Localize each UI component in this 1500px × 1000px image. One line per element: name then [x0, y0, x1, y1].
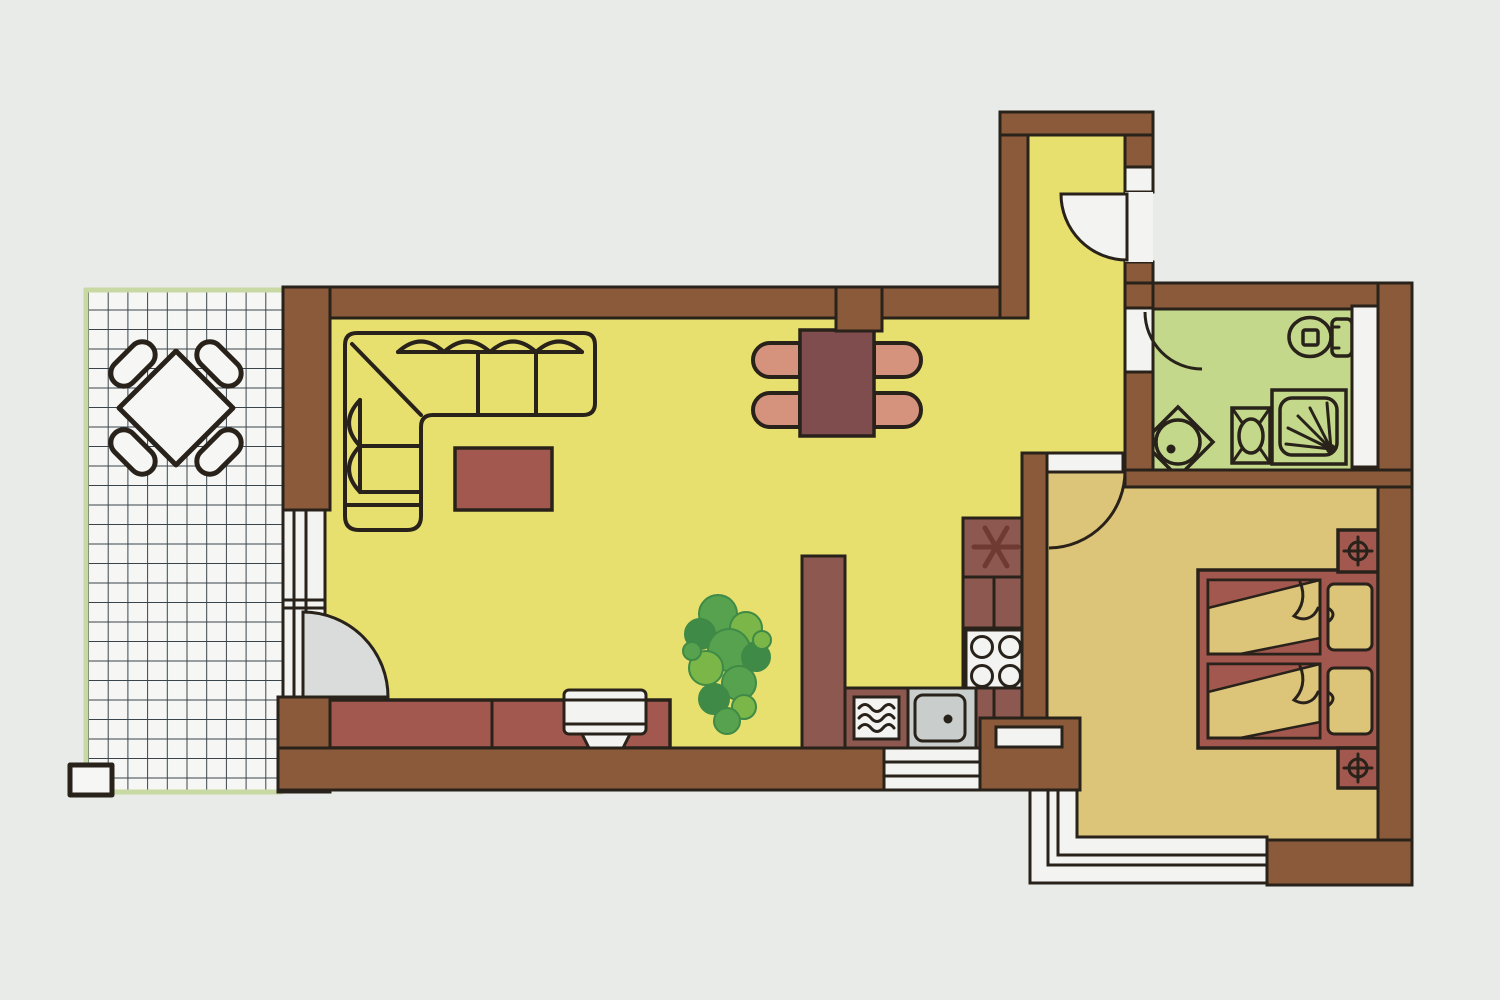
- bathroom-window-icon: [1352, 306, 1378, 467]
- sink-icon: [908, 688, 976, 748]
- stove-icon: [966, 630, 1024, 688]
- wall-living-left: [283, 287, 330, 510]
- double-bed-icon: [1198, 570, 1378, 748]
- wall-bedroom-bottom-right: [1267, 840, 1412, 885]
- pillow: [1328, 668, 1372, 734]
- wall-bathroom-bottom: [1125, 470, 1412, 487]
- wall-entry-right-upper: [1125, 135, 1153, 167]
- terrace-step: [70, 765, 112, 795]
- toilet-icon: [1289, 318, 1352, 357]
- wall-entry-left: [1000, 112, 1028, 318]
- wall-living-top: [283, 287, 1010, 318]
- kitchen-tall-cabinet: [802, 556, 845, 748]
- bidet-icon: [1232, 408, 1270, 463]
- coffee-table-icon: [455, 448, 552, 510]
- wall-entry-top: [1000, 112, 1153, 135]
- washing-machine-icon: [845, 688, 908, 748]
- wall-living-bottom: [278, 748, 884, 790]
- shower-icon: [1272, 390, 1346, 464]
- wall-right-exterior: [1378, 283, 1412, 885]
- pillow: [1328, 584, 1372, 650]
- dining-table-icon: [800, 330, 874, 436]
- wall-niche: [996, 727, 1062, 747]
- wall-dining-stub: [836, 287, 882, 331]
- entrance-sidelight-window-icon: [1125, 167, 1153, 192]
- wall-bedroom-left: [1022, 453, 1047, 718]
- terrace: [70, 288, 283, 795]
- floor-plan-page: [0, 0, 1500, 1000]
- kitchen-window-icon: [884, 748, 980, 790]
- floor-plan: [0, 0, 1500, 1000]
